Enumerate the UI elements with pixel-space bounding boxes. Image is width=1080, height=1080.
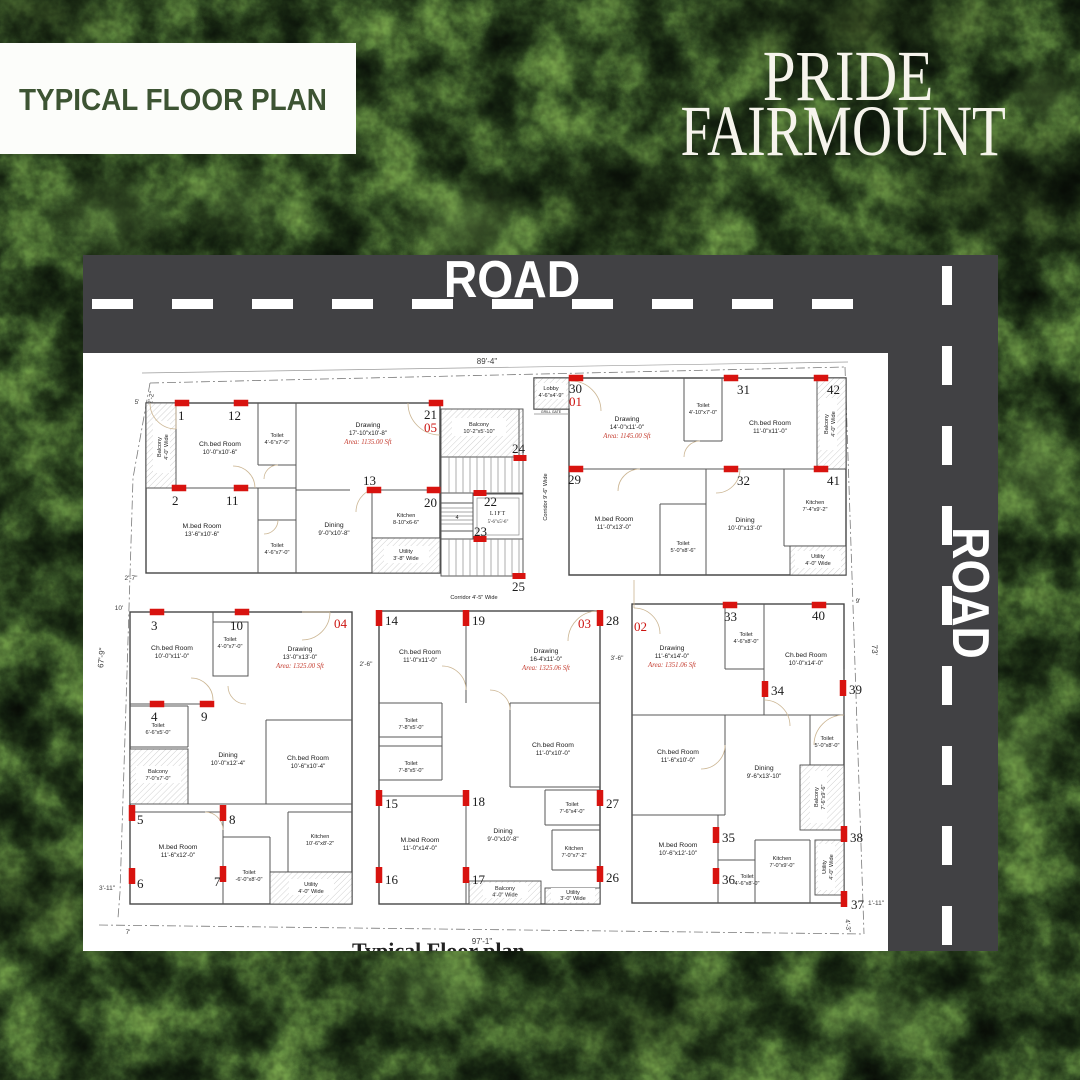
svg-text:16-4'x11'-0": 16-4'x11'-0" (530, 656, 562, 663)
svg-text:7'-4"x9'-2": 7'-4"x9'-2" (802, 507, 827, 513)
svg-text:11'-0"x11'-0": 11'-0"x11'-0" (403, 657, 437, 664)
svg-text:Dining: Dining (754, 765, 773, 772)
svg-text:7'-6"x9'-6": 7'-6"x9'-6" (821, 784, 827, 809)
svg-text:Dining: Dining (735, 517, 754, 524)
svg-text:6'-6"x5'-0": 6'-6"x5'-0" (145, 730, 170, 736)
svg-text:5'-0"x8'-6": 5'-0"x8'-6" (670, 548, 695, 554)
svg-text:Dining: Dining (218, 752, 237, 759)
svg-text:04: 04 (334, 616, 348, 631)
svg-text:36: 36 (722, 872, 736, 887)
svg-text:5'-6"x5'-6": 5'-6"x5'-6" (488, 520, 509, 525)
svg-text:Typical Floor plan: Typical Floor plan (352, 938, 525, 951)
svg-text:26: 26 (606, 870, 620, 885)
svg-text:Ch.bed Room: Ch.bed Room (399, 649, 441, 656)
svg-text:4'-6"x4'-9": 4'-6"x4'-9" (538, 393, 563, 399)
svg-text:17: 17 (472, 872, 486, 887)
svg-text:Ch.bed Room: Ch.bed Room (657, 749, 699, 756)
svg-text:4'-0" Wide: 4'-0" Wide (829, 854, 835, 879)
svg-text:Balcony: Balcony (157, 437, 163, 457)
svg-text:6: 6 (137, 876, 144, 891)
svg-text:5: 5 (137, 812, 144, 827)
svg-text:05: 05 (424, 420, 437, 435)
svg-text:67'-9": 67'-9" (96, 647, 107, 668)
svg-text:23: 23 (474, 524, 487, 539)
svg-text:11'-0"x14'-0": 11'-0"x14'-0" (403, 845, 437, 852)
svg-text:15: 15 (385, 796, 398, 811)
svg-text:33: 33 (724, 609, 737, 624)
svg-text:Ch.bed Room: Ch.bed Room (199, 441, 241, 448)
svg-text:11'-0"x10'-0": 11'-0"x10'-0" (536, 750, 570, 757)
svg-text:Drawing: Drawing (615, 416, 640, 423)
svg-text:10'-0"x12'-4": 10'-0"x12'-4" (211, 760, 246, 767)
svg-text:Corridor 9'-6" Wide: Corridor 9'-6" Wide (543, 473, 549, 520)
svg-text:Toilet: Toilet (676, 541, 690, 547)
svg-text:LIFT: LIFT (490, 511, 506, 517)
svg-text:9'-0"x10'-8": 9'-0"x10'-8" (487, 836, 518, 843)
svg-text:32: 32 (737, 473, 750, 488)
svg-text:11'-0"x13'-0": 11'-0"x13'-0" (597, 524, 631, 531)
svg-text:Ch.bed Room: Ch.bed Room (785, 652, 827, 659)
svg-text:Toilet: Toilet (739, 632, 753, 638)
svg-text:01: 01 (569, 394, 582, 409)
svg-text:Ch.bed Room: Ch.bed Room (151, 645, 193, 652)
svg-text:29: 29 (568, 472, 581, 487)
svg-text:9'-6"x13'-10": 9'-6"x13'-10" (747, 773, 782, 780)
svg-text:12: 12 (228, 408, 241, 423)
svg-text:Dining: Dining (324, 522, 343, 529)
svg-text:4'-3": 4'-3" (843, 919, 851, 933)
svg-text:Area: 1135.00 Sft: Area: 1135.00 Sft (343, 439, 392, 446)
svg-text:Ch.bed Room: Ch.bed Room (532, 742, 574, 749)
svg-text:Dining: Dining (493, 828, 512, 835)
svg-text:4'-6"x7'-0": 4'-6"x7'-0" (264, 550, 289, 556)
svg-text:2'-6": 2'-6" (360, 661, 374, 668)
svg-text:4'-6"x8'-0": 4'-6"x8'-0" (734, 881, 759, 887)
svg-text:4'-10"x7'-0": 4'-10"x7'-0" (689, 410, 717, 416)
svg-text:7'-0"x9'-0": 7'-0"x9'-0" (769, 863, 794, 869)
svg-text:31: 31 (737, 382, 750, 397)
svg-text:24: 24 (512, 441, 526, 456)
svg-text:4'-0" Wide: 4'-0" Wide (805, 561, 830, 567)
svg-text:18: 18 (472, 794, 485, 809)
svg-text:Balcony: Balcony (824, 414, 830, 434)
svg-text:Kitchen: Kitchen (311, 834, 330, 840)
svg-text:Utility: Utility (304, 882, 318, 888)
svg-text:Balcony: Balcony (148, 769, 168, 775)
svg-text:3'-8" Wide: 3'-8" Wide (393, 556, 418, 562)
svg-text:Drawing: Drawing (660, 645, 685, 652)
svg-text:9': 9' (856, 598, 861, 605)
svg-text:10'-0"x13'-0": 10'-0"x13'-0" (728, 525, 763, 532)
svg-text:M.bed Room: M.bed Room (659, 842, 698, 849)
svg-text:14'-0"x11'-0": 14'-0"x11'-0" (610, 424, 644, 431)
svg-text:4'-0"x7'-0": 4'-0"x7'-0" (217, 644, 242, 650)
svg-text:4'-0" Wide: 4'-0" Wide (831, 411, 837, 436)
svg-text:5': 5' (135, 399, 140, 406)
svg-text:11'-0"x11'-0": 11'-0"x11'-0" (753, 428, 787, 435)
svg-text:19: 19 (472, 613, 485, 628)
svg-text:10'-6"x12'-10": 10'-6"x12'-10" (659, 850, 697, 857)
svg-text:4'-6"x7'-0": 4'-6"x7'-0" (264, 440, 289, 446)
svg-text:22: 22 (484, 494, 497, 509)
svg-text:Utility: Utility (811, 554, 825, 560)
svg-text:7'-8"x5'-0": 7'-8"x5'-0" (398, 768, 423, 774)
svg-text:M.bed Room: M.bed Room (183, 523, 222, 530)
svg-text:1: 1 (178, 408, 185, 423)
svg-text:89'-4": 89'-4" (477, 357, 498, 366)
svg-text:9'-0"x10'-8": 9'-0"x10'-8" (318, 530, 349, 537)
svg-text:10': 10' (115, 605, 123, 612)
svg-text:13'-6"x10'-6": 13'-6"x10'-6" (185, 531, 220, 538)
svg-text:4'-0" Wide: 4'-0" Wide (164, 434, 170, 459)
svg-text:11: 11 (226, 493, 239, 508)
svg-text:38: 38 (850, 830, 863, 845)
svg-text:Toilet: Toilet (270, 433, 284, 439)
svg-text:17'-10"x10'-8": 17'-10"x10'-8" (349, 430, 387, 437)
svg-text:Toilet: Toilet (242, 870, 256, 876)
svg-text:Area: 1325.06 Sft: Area: 1325.06 Sft (521, 665, 571, 672)
svg-text:11'-6"x12'-0": 11'-6"x12'-0" (161, 852, 195, 859)
svg-text:Kitchen: Kitchen (397, 513, 416, 519)
svg-text:10: 10 (230, 618, 243, 633)
svg-text:13: 13 (363, 473, 376, 488)
svg-text:Toilet: Toilet (270, 543, 284, 549)
svg-text:-6'-0"x8'-0": -6'-0"x8'-0" (236, 877, 263, 883)
svg-text:GRILL GATE: GRILL GATE (541, 410, 562, 414)
svg-text:40: 40 (812, 608, 825, 623)
svg-text:Drawing: Drawing (356, 422, 381, 429)
svg-text:Kitchen: Kitchen (565, 846, 584, 852)
svg-text:27: 27 (606, 796, 620, 811)
svg-text:03: 03 (578, 616, 591, 631)
svg-text:Utility: Utility (399, 549, 413, 555)
svg-text:Area: 1145.00 Sft: Area: 1145.00 Sft (602, 433, 651, 440)
svg-text:13'-0"x13'-0": 13'-0"x13'-0" (283, 654, 318, 661)
svg-text:Area: 1325.00 Sft: Area: 1325.00 Sft (275, 663, 325, 670)
svg-text:Balcony: Balcony (814, 787, 820, 807)
svg-text:M.bed Room: M.bed Room (401, 837, 440, 844)
svg-text:Toilet: Toilet (696, 403, 710, 409)
svg-text:10'-0"x10'-6": 10'-0"x10'-6" (203, 449, 238, 456)
svg-text:4: 4 (151, 709, 158, 724)
svg-text:1'-11": 1'-11" (868, 900, 885, 907)
svg-text:4'-0" Wide: 4'-0" Wide (492, 893, 517, 899)
svg-text:37: 37 (851, 897, 865, 912)
svg-text:4'-0" Wide: 4'-0" Wide (298, 889, 323, 895)
svg-text:7'-6"x4'-0": 7'-6"x4'-0" (559, 809, 584, 815)
svg-text:3'-6": 3'-6" (611, 655, 625, 662)
svg-text:9: 9 (201, 709, 208, 724)
svg-text:10'-6"x10'-4": 10'-6"x10'-4" (291, 763, 326, 770)
svg-text:7: 7 (214, 874, 221, 889)
svg-text:Drawing: Drawing (534, 648, 559, 655)
svg-text:2'-7": 2'-7" (125, 575, 139, 582)
svg-text:10'-6"x8'-2": 10'-6"x8'-2" (306, 841, 334, 847)
svg-text:3: 3 (151, 618, 158, 633)
svg-text:Balcony: Balcony (469, 422, 489, 428)
svg-text:34: 34 (771, 683, 785, 698)
svg-text:7'-0"x7'-2": 7'-0"x7'-2" (561, 853, 586, 859)
svg-text:Utility: Utility (822, 860, 828, 874)
svg-text:Toilet: Toilet (740, 874, 754, 880)
svg-text:28: 28 (606, 613, 619, 628)
svg-text:16: 16 (385, 872, 399, 887)
svg-text:10'-0"x14'-0": 10'-0"x14'-0" (789, 660, 824, 667)
svg-text:Kitchen: Kitchen (806, 500, 825, 506)
svg-text:Balcony: Balcony (495, 886, 515, 892)
svg-text:7'-0"x7'-0": 7'-0"x7'-0" (145, 776, 170, 782)
svg-text:39: 39 (849, 682, 862, 697)
svg-text:Toilet: Toilet (404, 718, 418, 724)
svg-text:M.bed Room: M.bed Room (595, 516, 634, 523)
svg-text:4: 4 (455, 515, 458, 521)
svg-text:10'-0"x11'-0": 10'-0"x11'-0" (155, 653, 189, 660)
svg-text:7': 7' (126, 929, 131, 936)
svg-text:8: 8 (229, 812, 236, 827)
svg-text:10'-2"x5'-10": 10'-2"x5'-10" (463, 429, 494, 435)
svg-text:Toilet: Toilet (820, 736, 834, 742)
svg-text:11'-6"x14'-0": 11'-6"x14'-0" (655, 653, 689, 660)
svg-text:Corridor 4'-5" Wide: Corridor 4'-5" Wide (450, 595, 497, 601)
svg-text:Toilet: Toilet (404, 761, 418, 767)
svg-text:20: 20 (424, 495, 437, 510)
svg-text:M.bed Room: M.bed Room (159, 844, 198, 851)
svg-text:Area: 1351.06 Sft: Area: 1351.06 Sft (647, 662, 697, 669)
svg-text:5'-0"x8'-0": 5'-0"x8'-0" (814, 743, 839, 749)
svg-text:02: 02 (634, 619, 647, 634)
svg-text:Kitchen: Kitchen (773, 856, 792, 862)
svg-text:Ch.bed Room: Ch.bed Room (287, 755, 329, 762)
svg-text:7'-8"x5'-0": 7'-8"x5'-0" (398, 725, 423, 731)
svg-text:41: 41 (827, 473, 840, 488)
svg-text:8-10"x6-6": 8-10"x6-6" (393, 520, 419, 526)
svg-text:4'-6"x8'-0": 4'-6"x8'-0" (733, 639, 758, 645)
svg-text:3'-11": 3'-11" (99, 885, 116, 892)
svg-text:73': 73' (870, 645, 879, 656)
svg-text:11'-6"x10'-0": 11'-6"x10'-0" (661, 757, 695, 764)
svg-text:25: 25 (512, 579, 525, 594)
svg-text:3'-0" Wide: 3'-0" Wide (560, 896, 585, 902)
svg-text:Toilet: Toilet (223, 637, 237, 643)
svg-text:Drawing: Drawing (288, 646, 313, 653)
svg-text:14: 14 (385, 613, 399, 628)
svg-text:Ch.bed Room: Ch.bed Room (749, 420, 791, 427)
svg-text:2: 2 (172, 493, 179, 508)
svg-text:Toilet: Toilet (565, 802, 579, 808)
svg-text:Lobby: Lobby (543, 386, 558, 392)
svg-text:35: 35 (722, 830, 735, 845)
svg-text:42: 42 (827, 382, 840, 397)
